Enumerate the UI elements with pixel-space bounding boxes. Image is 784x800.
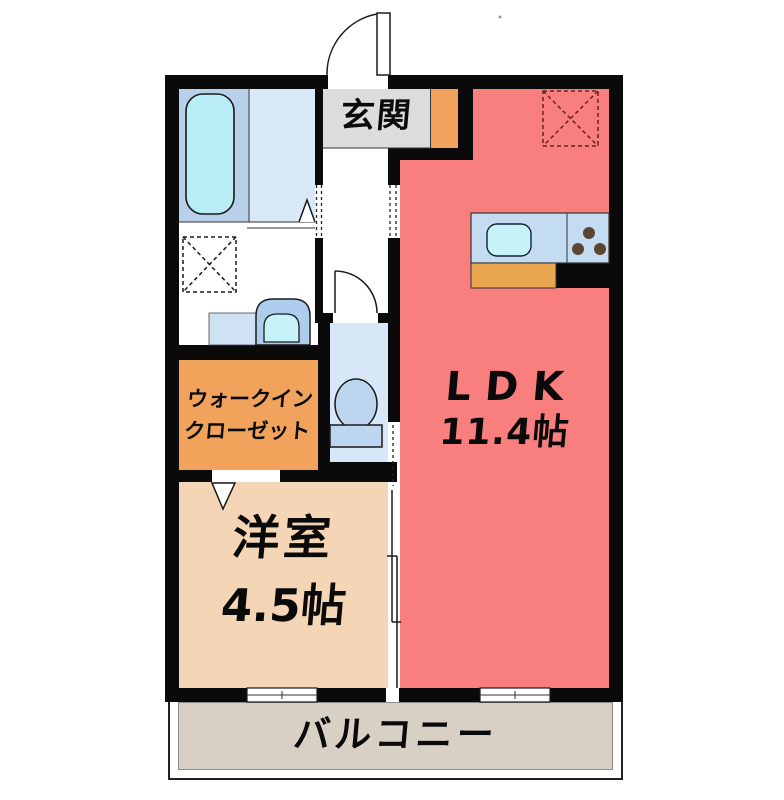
wall-toilet-bottom [322, 462, 397, 482]
wall-bottom-2 [317, 688, 386, 702]
wall-top-left [165, 75, 328, 89]
walk-in-closet-label: ウォークイン クローゼット [176, 384, 321, 447]
wall-left [165, 75, 179, 702]
sliding-door-notch [386, 688, 399, 696]
hallway-area [323, 148, 388, 323]
wall-bottom-3 [399, 688, 480, 702]
bathtub-zone [179, 89, 249, 222]
entrance-door [327, 13, 390, 75]
opening-washroom [317, 185, 322, 238]
ldk-size-label: 11.4帖 [398, 412, 611, 453]
genkan-label: 玄関 [321, 97, 431, 136]
wall-genkan-band [388, 148, 473, 160]
shoe-cabinet [430, 89, 459, 148]
wall-bottom-1 [165, 688, 247, 702]
wall-hall-left-lower [315, 238, 323, 323]
balcony-label: バルコニー [166, 714, 625, 757]
toilet-room-area [330, 323, 388, 462]
walk-in-closet-label-line2: クローゼット [176, 416, 318, 448]
wall-closet-bottom-left [165, 470, 212, 482]
washroom-area [179, 222, 315, 345]
wall-washroom-bottom [165, 345, 330, 360]
walk-in-closet-label-line1: ウォークイン [179, 384, 321, 416]
wall-hall-right-upper [388, 160, 400, 185]
opening-ldk [390, 185, 396, 238]
wall-hall-left-upper [315, 89, 323, 185]
ldk-label: LDK [398, 364, 611, 410]
floor-plan: 玄関 LDK 11.4帖 洋室 4.5帖 ウォークイン クローゼット バルコニー [0, 0, 784, 800]
ldk-area-upper [473, 89, 609, 162]
wall-right [609, 75, 623, 702]
wall-hall-right-mid [388, 238, 400, 422]
western-room-size-label: 4.5帖 [177, 580, 391, 632]
print-artifact-dot [499, 16, 502, 19]
kitchen-duct-block [556, 263, 609, 288]
western-room-label: 洋室 [177, 512, 391, 566]
wall-top-right [388, 75, 623, 89]
wall-toilet-top-left [315, 313, 333, 323]
wall-bottom-4 [550, 688, 623, 702]
